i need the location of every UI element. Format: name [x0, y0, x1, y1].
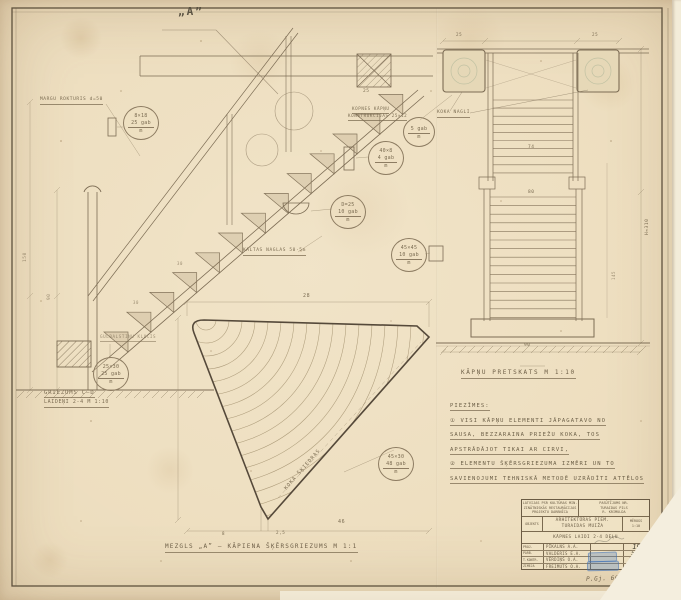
order-line: R. KRIMULDA [579, 510, 649, 515]
section-marker-a: „A” [178, 6, 204, 18]
wooden-nails-label: KOKA NAGLI [437, 111, 470, 118]
dim-25-left-post: 25 [456, 33, 462, 38]
name-cell: PĪKALNS A.A. [544, 544, 591, 550]
part-unit: m [384, 163, 387, 169]
part-dim: 40×8 [379, 148, 392, 154]
object-label-cell: OBJEKTS [522, 517, 543, 531]
dim-25-right-post: 25 [592, 33, 598, 38]
dim-left-small: 8 [222, 532, 225, 537]
elevation-linework [436, 38, 650, 366]
name-cell: VĒRDIŅŠ O.A. [544, 557, 591, 563]
section-cd-caption-line2: LAIDEŅI 2-4 M 1:10 [44, 400, 109, 408]
note-line: ① VISI KĀPŅU ELEMENTI JĀPAGATAVO NO [450, 418, 606, 426]
notes-block: PIEZĪMES: ① VISI KĀPŅU ELEMENTI JĀPAGATA… [450, 403, 644, 490]
role-cell: PROJ. [522, 544, 544, 550]
part-unit: m [417, 134, 420, 140]
org-line: LATVIJAS PSR KULTŪRAS MIN. [522, 501, 578, 506]
handrail-linework [88, 28, 298, 301]
paper-bottom-edge [280, 591, 681, 600]
section-cd-caption-line1: GRIEZUMS C–D [44, 390, 95, 398]
part-qty: 48 gab [383, 461, 409, 469]
file-number: 528 [624, 551, 649, 557]
scale-value: 1:10 [623, 524, 649, 529]
dim-90-bottom: 90 [524, 344, 531, 349]
dim-145: 145 [612, 271, 616, 280]
part-mark-board: 40×8 4 gab m [368, 141, 404, 175]
dim-beam-25: 25 [363, 90, 370, 95]
scale-cell: MĒROGS 1:10 [622, 517, 649, 531]
part-unit: m [407, 260, 410, 266]
part-qty: 25 gab [128, 120, 154, 128]
dim-apex: 2,5 [276, 531, 285, 536]
blue-ink-stamp [587, 561, 619, 572]
order-cell: PASŪTĪJUMS NR. TURAIDAS PILS R. KRIMULDA [579, 500, 649, 516]
organization-cell: LATVIJAS PSR KULTŪRAS MIN. ZINĀTNISKĀS R… [522, 500, 579, 516]
note-line: ② ELEMENTU ŠĶĒRSGRIEZUMA IZMĒRI UN TO [450, 461, 615, 469]
part-mark-nails: 5 gab m [403, 117, 435, 147]
note-line: APSTRĀDĀJOT TIKAI AR CIRVI, [450, 447, 569, 455]
part-unit: m [109, 379, 112, 385]
note-line: SAVIENOJUMI TEHNISKĀ METODĒ UZRĀDĪTI ATT… [450, 476, 644, 484]
date-cell: 7.I.62 [624, 557, 649, 563]
dim-riser-1: 30 [133, 301, 139, 305]
dim-74: 74 [528, 146, 535, 151]
part-unit: m [394, 469, 397, 475]
section-cut-line [162, 30, 278, 94]
dim-90-left: 90 [48, 293, 53, 300]
title-block: LATVIJAS PSR KULTŪRAS MIN. ZINĀTNISKĀS R… [521, 499, 650, 570]
part-dim: 25×30 [103, 364, 120, 370]
part-unit: m [346, 217, 349, 223]
forged-nails-label: KALTAS NAGLAS 50·5m [243, 249, 306, 256]
landing-linework [140, 54, 433, 87]
role-cell: PĀRB. [522, 551, 544, 557]
dim-height: H≈310 [646, 218, 651, 235]
part-dim: D=25 [341, 202, 354, 208]
dim-top-28: 28 [303, 294, 310, 300]
part-dim: 45×30 [388, 454, 405, 460]
handrail-label: MARGU ROKTURIS d=50 [40, 98, 103, 105]
title-block-header: LATVIJAS PSR KULTŪRAS MIN. ZINĀTNISKĀS R… [522, 500, 649, 517]
org-line: PROJEKTU DARBNĪCA [522, 510, 578, 515]
part-mark-baluster: 8×18 25 gab m [123, 106, 159, 140]
left-dimension-lines [27, 99, 60, 393]
part-mark-sleeper: 25×30 25 gab m [93, 357, 129, 391]
object-name-cell: ARHITEKTŪRAS PIEM. TURAIDAS MUIŽA [543, 517, 622, 531]
elevation-caption: KĀPŅU PRETSKATS M 1:10 [461, 370, 576, 379]
drawing-sheet: „A” MARGU ROKTURIS d=50 KOPNES KĀPŅU KON… [0, 0, 681, 600]
part-qty: 5 gab [408, 126, 431, 134]
role-cell: ZĪMĒJA [522, 564, 544, 570]
sheet-number: 19 [624, 544, 649, 550]
object-line: TURAIDAS MUIŽA [543, 524, 622, 530]
elevation-treads [490, 100, 576, 317]
sleeper-label: GULBALSTIŅU KLUCIS [100, 335, 156, 342]
part-dim: 45×45 [401, 245, 418, 251]
step-detail-circles [246, 92, 313, 166]
dim-150-left: 150 [24, 252, 29, 262]
dim-80: 80 [528, 191, 535, 196]
part-unit: m [139, 128, 142, 134]
dim-riser-2: 30 [177, 262, 183, 266]
object-row: OBJEKTS ARHITEKTŪRAS PIEM. TURAIDAS MUIŽ… [522, 517, 649, 532]
part-qty: 10 gab [396, 252, 422, 260]
name-cell: FREIMUTS O.A. [544, 564, 591, 570]
notes-title: PIEZĪMES: [450, 403, 490, 411]
part-qty: 25 gab [98, 371, 124, 379]
part-mark-halfround: D=25 10 gab m [330, 195, 366, 229]
sheet-title-cell: KĀPNES LAIDI 2-4 DEĻU [522, 532, 649, 544]
part-qty: 10 gab [335, 209, 361, 217]
part-mark-square: 45×45 10 gab m [391, 238, 427, 272]
part-mark-step-nails: 45×30 48 gab m [378, 447, 414, 481]
date-cell: 1962.g. [624, 564, 649, 570]
role-cell: T.KONTR. [522, 557, 544, 563]
detail-caption: MEZGLS „A” — KĀPIENA ŠĶĒRSGRIEZUMS M 1:1 [165, 544, 358, 553]
part-qty: 4 gab [375, 155, 398, 163]
profile-sketches [108, 118, 443, 261]
part-dim: 8×18 [134, 113, 147, 119]
signature-row: ZĪMĒJA FREIMUTS O.A. 1962.g. [522, 564, 649, 570]
stringer-label-line2: KONSTRUKCIJAS 25×12 [348, 114, 407, 121]
paper-right-edge [672, 0, 681, 600]
signature-cell [591, 544, 624, 550]
name-cell: VALDERIS E.A. [544, 551, 591, 557]
note-line: SAUSA, BEZZARAINA PRIEŽU KOKA, TOS [450, 432, 600, 440]
dim-bottom-46: 46 [338, 520, 345, 526]
